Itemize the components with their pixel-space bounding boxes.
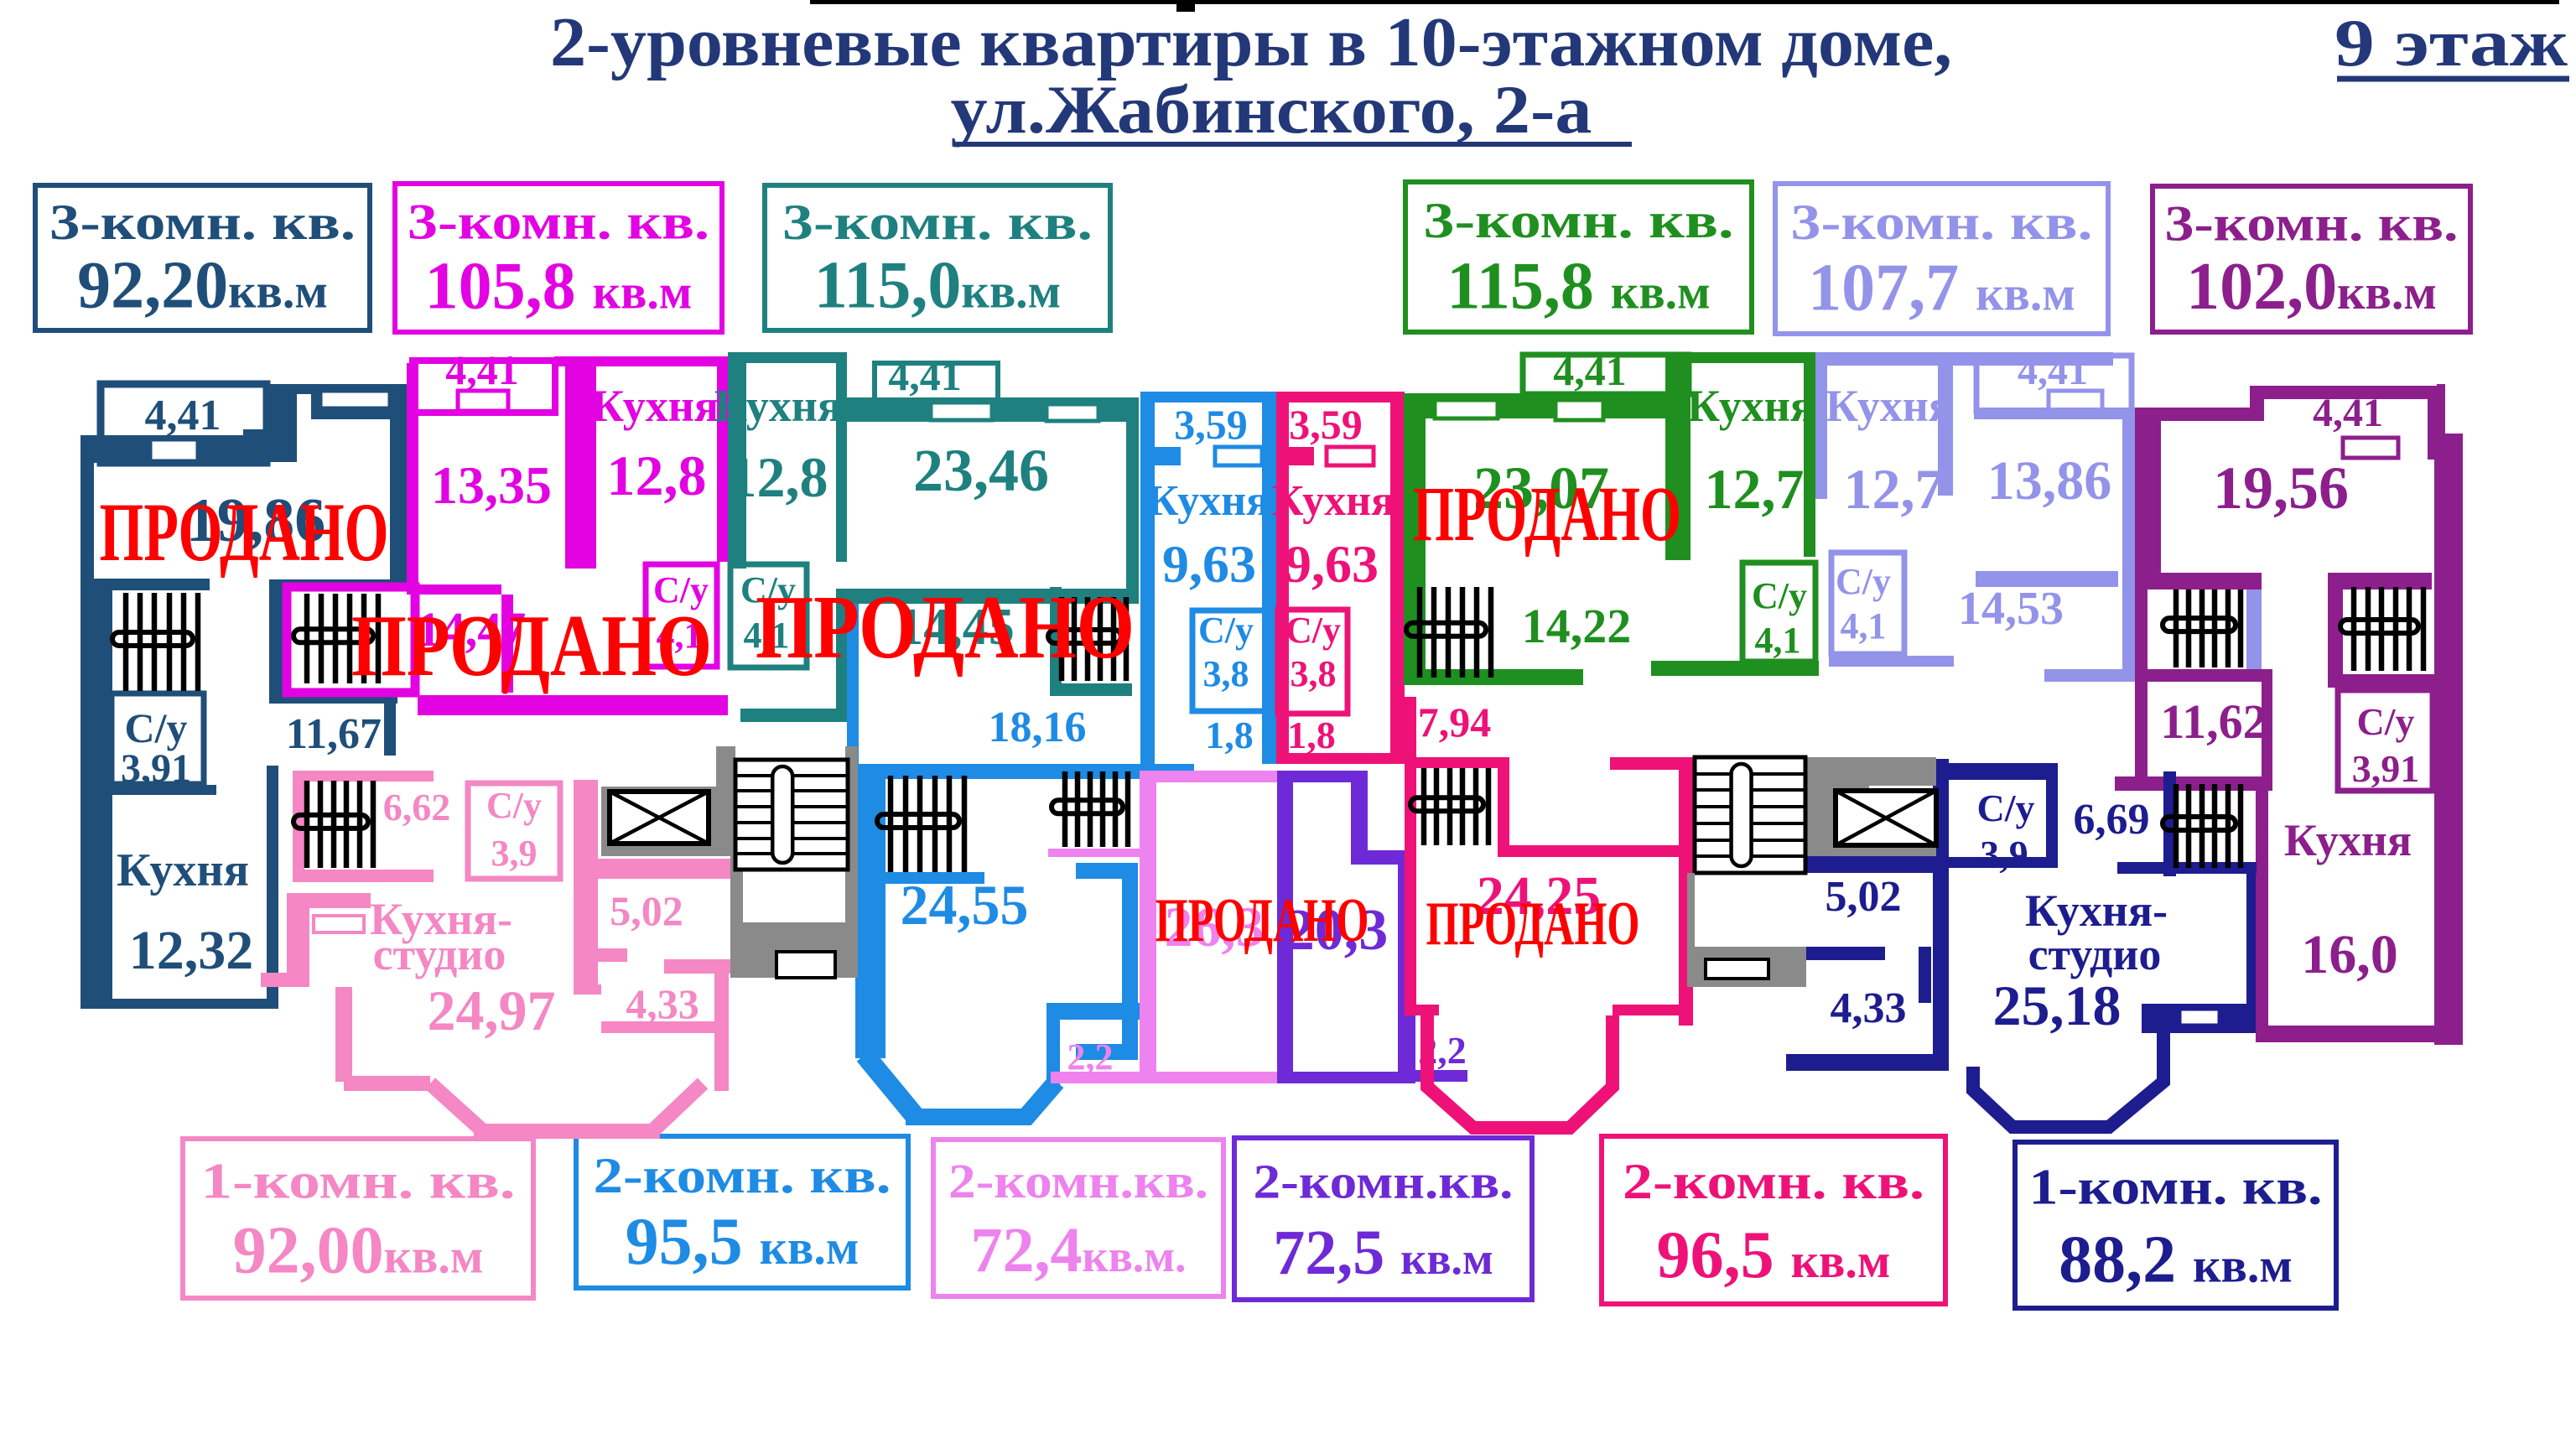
svg-text:С/у: С/у (486, 785, 542, 826)
svg-text:23,46: 23,46 (913, 437, 1049, 504)
svg-text:С/у: С/у (1977, 787, 2035, 829)
svg-text:3,59: 3,59 (1174, 401, 1248, 448)
svg-text:ПРОДАНО: ПРОДАНО (100, 486, 389, 579)
svg-text:ПРОДАНО: ПРОДАНО (351, 596, 712, 694)
svg-text:Кухня: Кухня (1272, 477, 1395, 525)
svg-text:14,22: 14,22 (1522, 599, 1632, 653)
svg-text:3-комн. кв.: 3-комн. кв. (782, 195, 1093, 250)
svg-text:ПРОДАНО: ПРОДАНО (756, 578, 1135, 678)
svg-text:12,32: 12,32 (129, 920, 254, 981)
svg-text:12,8: 12,8 (607, 444, 707, 507)
svg-text:3,9: 3,9 (1980, 833, 2028, 875)
svg-text:ПРОДАНО: ПРОДАНО (1413, 471, 1681, 558)
svg-text:2-комн. кв.: 2-комн. кв. (594, 1148, 891, 1203)
svg-text:6,69: 6,69 (2074, 796, 2150, 844)
svg-text:1,8: 1,8 (1205, 714, 1254, 756)
svg-text:3,59: 3,59 (1289, 401, 1363, 448)
svg-text:2,2: 2,2 (1067, 1036, 1114, 1078)
svg-text:4,41: 4,41 (445, 346, 519, 393)
svg-text:2-комн. кв.: 2-комн. кв. (1623, 1154, 1924, 1209)
svg-text:13,35: 13,35 (431, 455, 552, 515)
svg-text:Кухня: Кухня (1687, 381, 1815, 431)
svg-text:3,8: 3,8 (1291, 653, 1337, 694)
svg-text:4,41: 4,41 (145, 392, 221, 439)
svg-text:3,91: 3,91 (121, 746, 191, 791)
svg-text:4,41: 4,41 (1553, 347, 1627, 394)
svg-text:1,8: 1,8 (1287, 714, 1336, 756)
svg-text:3-комн. кв.: 3-комн. кв. (2165, 195, 2459, 251)
svg-text:3-комн. кв.: 3-комн. кв. (408, 194, 709, 249)
svg-text:1-комн. кв.: 1-комн. кв. (2029, 1159, 2323, 1214)
svg-text:24,97: 24,97 (428, 979, 556, 1042)
svg-text:3-комн. кв.: 3-комн. кв. (1791, 195, 2093, 250)
svg-text:11,62: 11,62 (2160, 694, 2267, 749)
svg-text:4,41: 4,41 (888, 352, 962, 399)
svg-text:9,63: 9,63 (1162, 534, 1256, 594)
svg-text:С/у: С/у (2357, 700, 2415, 743)
svg-text:12,7: 12,7 (1705, 457, 1805, 521)
svg-text:2-уровневые квартиры в 10-этаж: 2-уровневые квартиры в 10-этажном доме, (550, 3, 1952, 81)
svg-text:25,18: 25,18 (1993, 974, 2122, 1037)
svg-text:4,1: 4,1 (1841, 605, 1887, 647)
svg-text:3,9: 3,9 (491, 833, 538, 874)
svg-text:Кухня: Кухня (117, 844, 249, 896)
svg-text:С/у: С/у (1836, 561, 1891, 602)
svg-text:2-комн.кв.: 2-комн.кв. (948, 1154, 1208, 1208)
svg-text:4,41: 4,41 (2018, 349, 2088, 393)
svg-text:12,7: 12,7 (1844, 457, 1944, 521)
svg-text:11,67: 11,67 (286, 710, 382, 758)
svg-text:С/у: С/у (1752, 575, 1807, 616)
svg-text:9 этаж: 9 этаж (2334, 7, 2568, 80)
svg-text:3,91: 3,91 (2352, 747, 2420, 790)
svg-text:С/у: С/у (1285, 610, 1341, 651)
svg-text:4,1: 4,1 (1755, 620, 1801, 661)
svg-text:4,33: 4,33 (1831, 984, 1907, 1032)
svg-text:2-комн.кв.: 2-комн.кв. (1254, 1154, 1514, 1208)
svg-text:Кухня: Кухня (2284, 815, 2412, 865)
svg-text:4,41: 4,41 (2313, 391, 2383, 435)
svg-text:ул.Жабинского, 2-а: ул.Жабинского, 2-а (951, 71, 1592, 148)
svg-text:1-комн. кв.: 1-комн. кв. (201, 1153, 516, 1208)
svg-text:Кухня: Кухня (591, 381, 719, 431)
svg-text:6,62: 6,62 (383, 786, 451, 828)
svg-text:14,53: 14,53 (1958, 583, 2064, 635)
svg-text:Кухня: Кухня (1147, 477, 1270, 525)
svg-text:С/у: С/у (1198, 610, 1254, 651)
svg-text:Кухня-: Кухня- (2025, 885, 2168, 936)
svg-text:Кухня: Кухня (714, 381, 842, 431)
svg-text:С/у: С/у (125, 704, 188, 751)
svg-text:5,02: 5,02 (1826, 873, 1902, 921)
svg-text:5,02: 5,02 (610, 887, 683, 934)
svg-text:12,8: 12,8 (729, 445, 828, 509)
svg-text:студио: студио (2028, 929, 2162, 979)
svg-text:17,94: 17,94 (1397, 699, 1492, 745)
svg-text:18,16: 18,16 (989, 704, 1087, 751)
svg-text:ПРОДАНО: ПРОДАНО (1426, 890, 1640, 958)
svg-text:4,33: 4,33 (626, 980, 699, 1027)
svg-text:3-комн. кв.: 3-комн. кв. (49, 195, 356, 250)
svg-text:19,56: 19,56 (2213, 454, 2349, 522)
svg-text:9,63: 9,63 (1285, 534, 1379, 594)
svg-text:13,86: 13,86 (1987, 450, 2112, 512)
svg-text:3,8: 3,8 (1203, 653, 1249, 694)
svg-text:3-комн. кв.: 3-комн. кв. (1424, 193, 1734, 248)
svg-text:студио: студио (373, 929, 506, 979)
svg-text:Кухня: Кухня (1826, 381, 1953, 431)
svg-text:ПРОДАНО: ПРОДАНО (1156, 886, 1369, 955)
svg-text:16,0: 16,0 (2301, 924, 2398, 985)
